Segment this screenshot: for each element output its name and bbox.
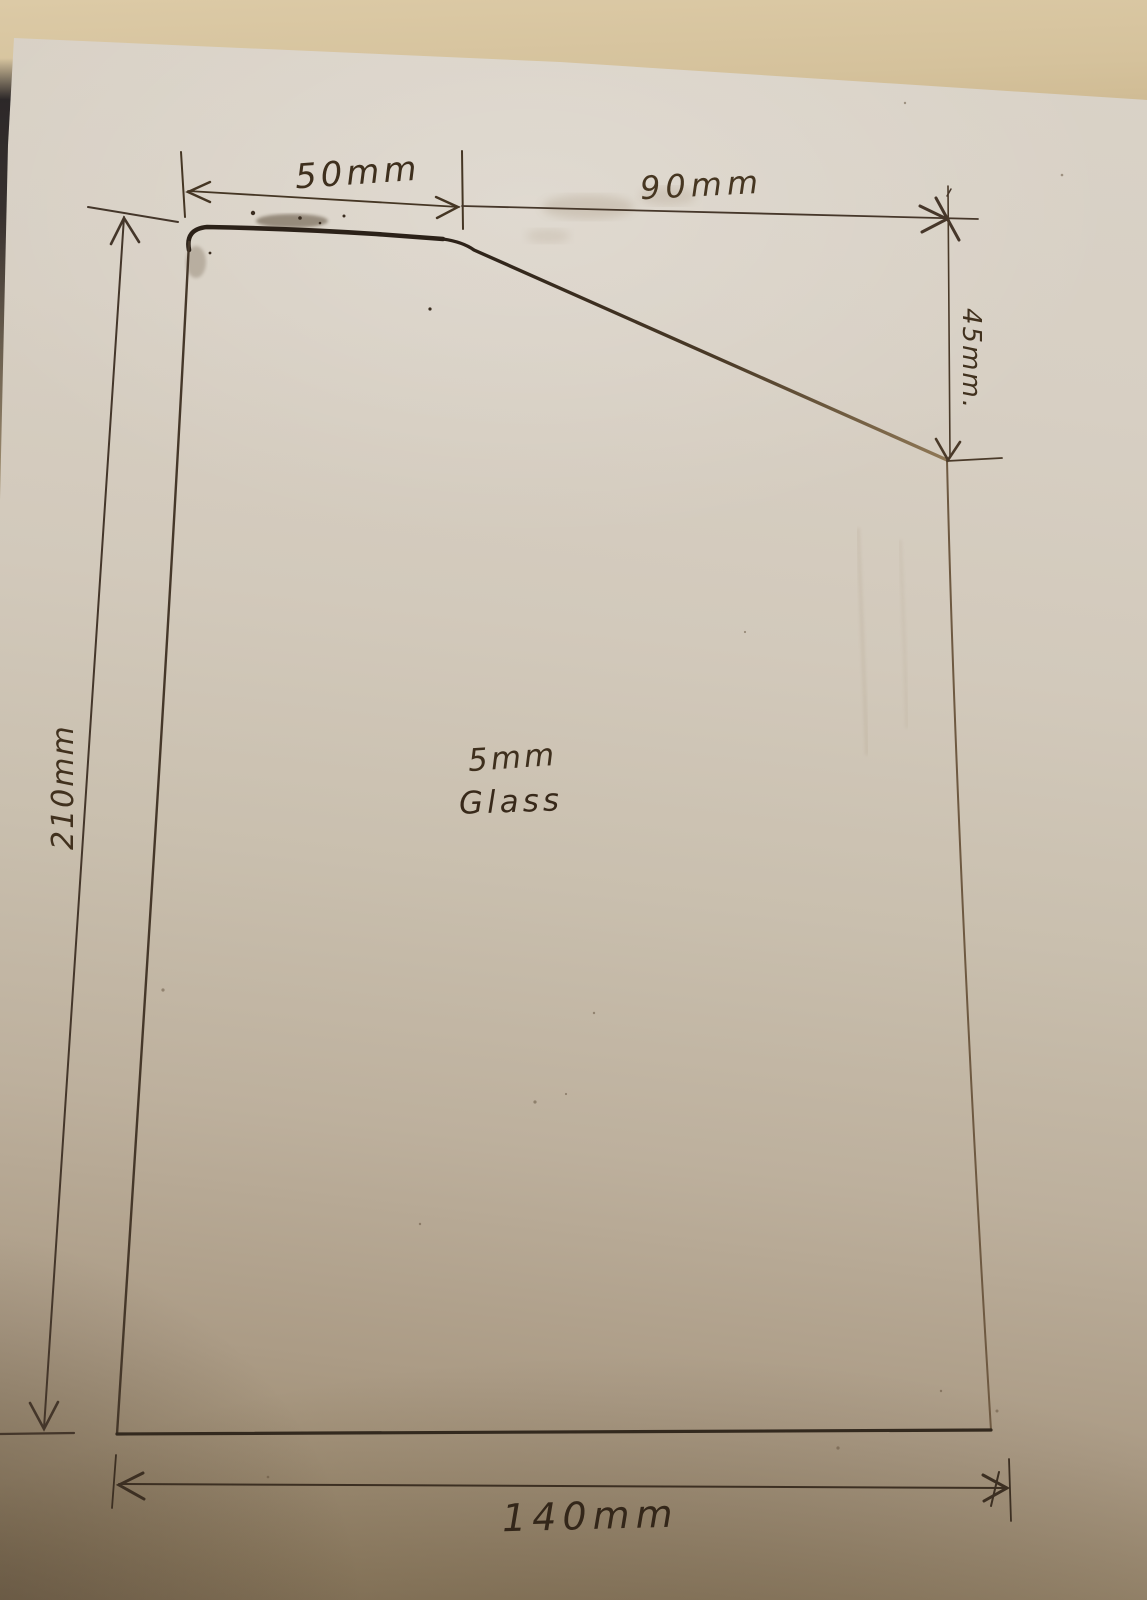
photo-of-drawing: 50mm 90mm 45mm. 210mm 140mm 5mm Glass [0,0,1147,1600]
dust-specks [161,102,1063,1478]
material-note-material: Glass [458,782,563,822]
outline-top-edge [188,227,443,250]
outline-left-edge [117,242,189,1434]
glass-outline [117,227,991,1434]
outline-right-edge [947,460,991,1430]
outline-bottom-edge [117,1430,991,1434]
outline-slant-edge [443,239,947,460]
dimension-label-left-height: 210mm [46,724,81,850]
dimension-label-top-right-width: 90mm [639,163,764,207]
drawing-svg [0,0,1147,1600]
paper-smudges [186,187,907,755]
dim-210mm-lines [0,207,178,1434]
material-note-thickness: 5mm [467,737,558,779]
dimension-label-right-drop: 45mm. [956,308,986,410]
dimension-label-bottom-width: 140mm [501,1492,679,1541]
